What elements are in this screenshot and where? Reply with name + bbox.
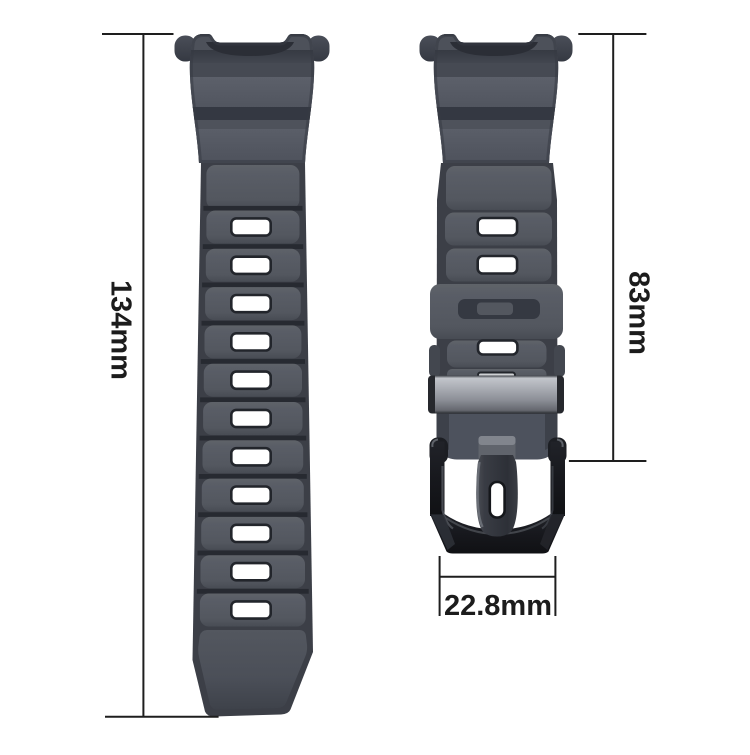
svg-text:134mm: 134mm [105,280,137,380]
svg-text:22.8mm: 22.8mm [444,590,552,622]
svg-text:83mm: 83mm [622,271,654,355]
